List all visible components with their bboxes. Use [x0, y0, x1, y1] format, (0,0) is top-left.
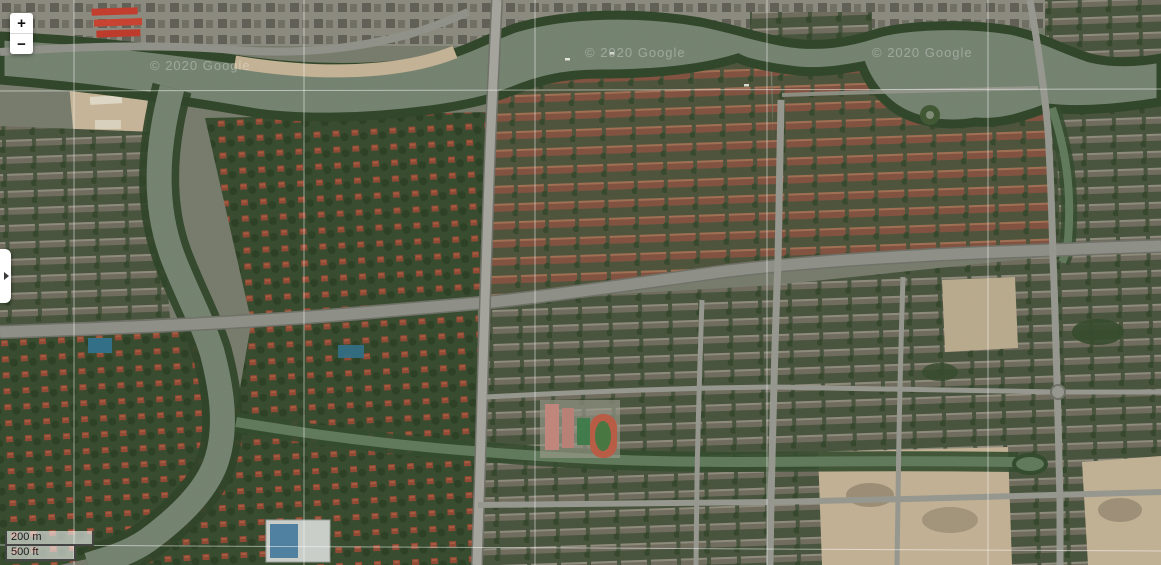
scale-imperial: 500 ft — [5, 546, 76, 561]
sidebar-toggle-button[interactable] — [0, 249, 11, 303]
zoom-control: + − — [10, 13, 33, 54]
grain-overlay — [0, 0, 1161, 565]
zoom-in-button[interactable]: + — [10, 13, 33, 34]
scale-control: 200 m 500 ft — [5, 531, 94, 561]
zoom-out-button[interactable]: − — [10, 34, 33, 54]
chevron-right-icon — [4, 272, 9, 280]
map-root: © 2020 Google © 2020 Google © 2020 Googl… — [0, 0, 1161, 565]
map-canvas[interactable] — [0, 0, 1161, 565]
scale-metric: 200 m — [5, 531, 94, 546]
